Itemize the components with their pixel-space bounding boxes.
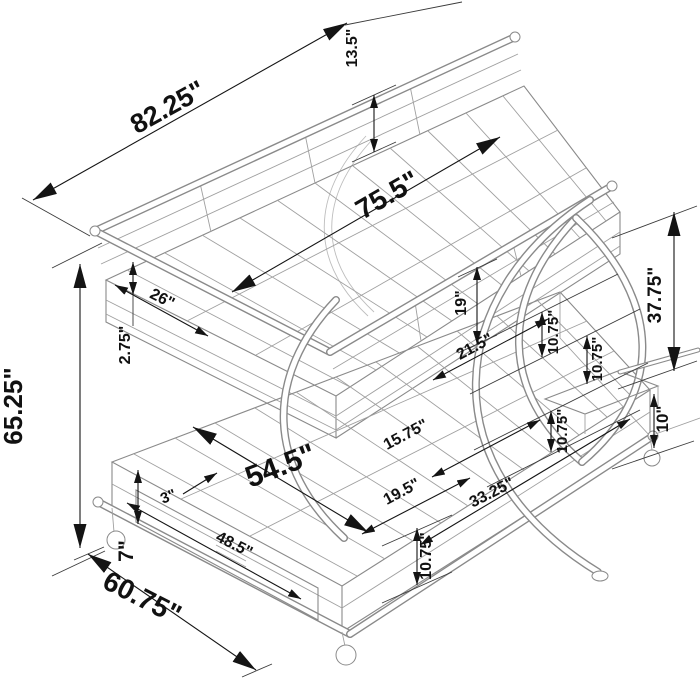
dim-3-label: 3" — [158, 486, 179, 508]
dim-10-75-middle-label: 10.75" — [589, 337, 606, 382]
dim-upper-bed-length: 75.5" — [232, 137, 500, 292]
dim-19-5-label: 19.5" — [381, 475, 423, 508]
dim-leg-gap-lower: 10.75" — [551, 409, 571, 454]
dim-2-75-label: 2.75" — [117, 326, 134, 365]
dim-10-75-lower-label: 10.75" — [554, 409, 571, 454]
dim-10-75-upper-label: 10.75" — [545, 310, 562, 355]
curved-legs — [284, 200, 643, 581]
dim-65-25-label: 65.25" — [0, 367, 28, 444]
dim-leg-gap-upper: 10.75" — [542, 310, 562, 357]
dim-overall-height: 65.25" — [0, 243, 105, 576]
dim-13-5-label: 13.5" — [344, 29, 361, 68]
dim-54-5-label: 54.5" — [241, 438, 321, 495]
dim-10-75-bottom-label: 10.75" — [418, 532, 435, 580]
dim-leg-gap-middle: 10.75" — [587, 336, 606, 384]
dim-33-25-label: 33.25" — [467, 475, 517, 512]
dim-10-label: 10" — [653, 406, 672, 433]
dim-37-75-label: 37.75" — [645, 267, 666, 324]
dim-leg-offset: 21.5" — [433, 319, 548, 380]
dim-48-5-label: 48.5" — [213, 529, 255, 562]
dim-19-label: 19" — [453, 290, 470, 315]
dim-82-25-label: 82.25" — [125, 75, 210, 140]
dim-60-75-label: 60.75" — [98, 565, 186, 630]
dim-7-label: 7" — [115, 540, 138, 562]
dim-lower-bed-span: 54.5" — [193, 427, 368, 532]
dim-end-span: 33.25" — [420, 419, 630, 545]
diagram-canvas: 82.25" 13.5" 75.5" 26" 2.75" 65.25" 19" … — [0, 0, 700, 700]
rear-curved-leg — [324, 136, 374, 316]
dim-26-label: 26" — [147, 286, 177, 313]
dim-75-5-label: 75.5" — [350, 164, 424, 225]
